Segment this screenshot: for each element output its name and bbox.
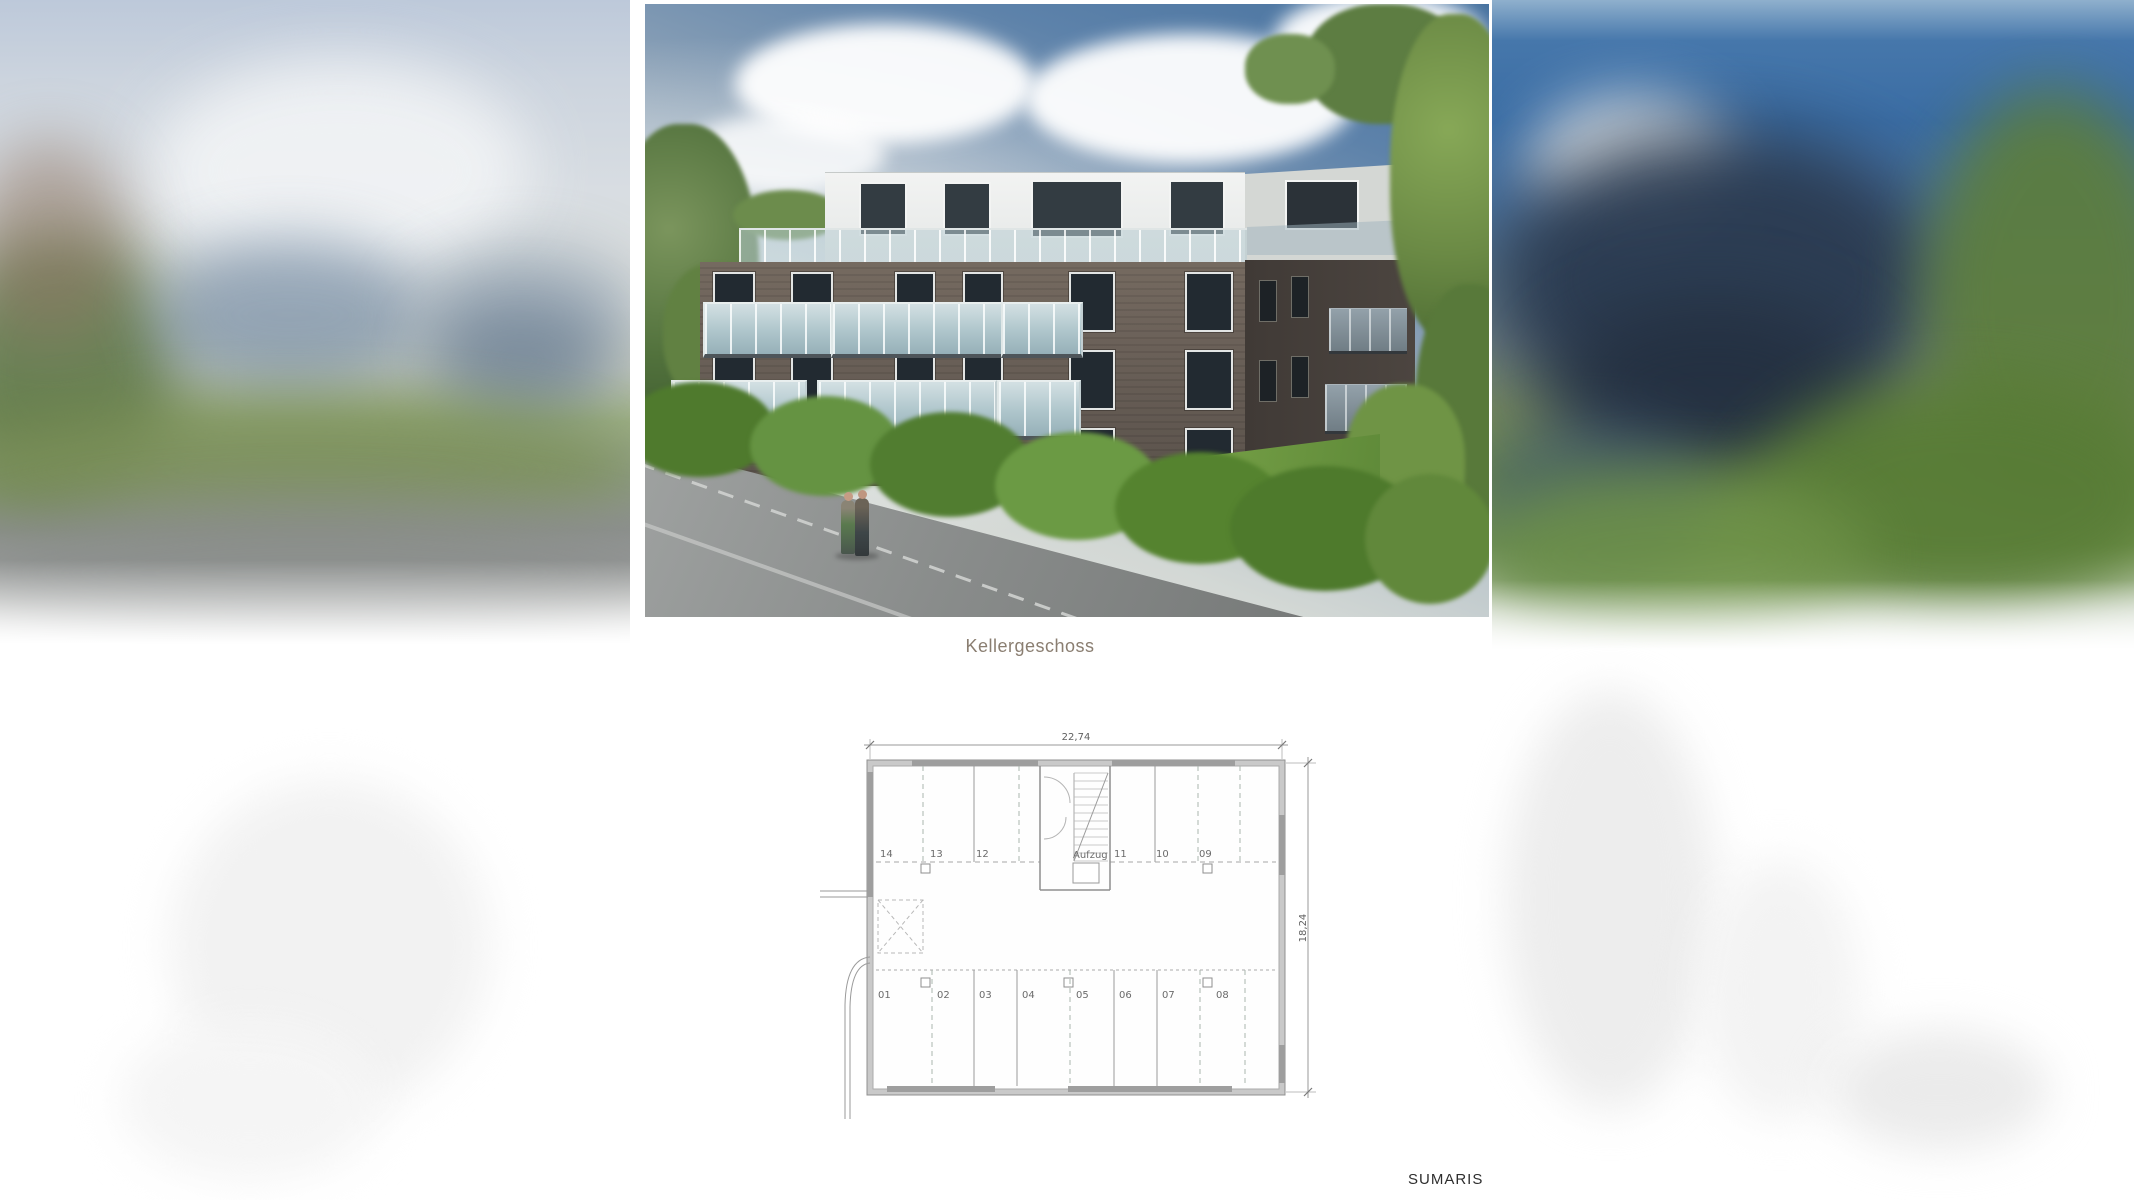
window: [1185, 350, 1233, 410]
room-label: 03: [979, 990, 992, 1001]
wall-pier: [887, 1086, 995, 1092]
driveway-curves: [820, 891, 870, 1119]
elevator-label: Aufzug: [1073, 850, 1108, 861]
real-estate-listing-image: Kellergeschoss 22,74 18,24: [0, 0, 2134, 1200]
pedestrian-head: [844, 492, 853, 501]
room-label: 11: [1114, 849, 1127, 860]
fade-to-white: [0, 560, 630, 680]
room-label: 06: [1119, 990, 1132, 1001]
side-window: [1259, 360, 1277, 402]
side-window: [1259, 280, 1277, 322]
balcony: [831, 302, 1003, 358]
basement-floor-plan: 22,74 18,24: [790, 715, 1330, 1127]
room-label: 09: [1199, 849, 1212, 860]
dimension-label-width: 22,74: [1062, 732, 1091, 743]
pedestrian-head: [858, 490, 867, 499]
column-marker: [921, 864, 930, 873]
dark-blob: [430, 300, 610, 420]
tree: [1245, 34, 1335, 104]
room-label: 14: [880, 849, 893, 860]
wall-pier: [867, 772, 873, 897]
fade-to-white: [1492, 580, 2134, 680]
watermark: SUMARIS: [1408, 1171, 1483, 1188]
balcony: [703, 302, 835, 358]
penthouse-window: [1285, 180, 1359, 230]
hedge-bush: [1365, 474, 1489, 604]
floor-plan-caption: Kellergeschoss: [607, 636, 1453, 657]
elevator-shaft: [1073, 863, 1099, 883]
room-label: 12: [976, 849, 989, 860]
room-label: 05: [1076, 990, 1089, 1001]
side-window: [1291, 356, 1309, 398]
blurred-backdrop-left: [0, 0, 630, 680]
side-window: [1291, 276, 1309, 318]
balcony: [1001, 302, 1083, 358]
room-label: 13: [930, 849, 943, 860]
column-marker: [1203, 978, 1212, 987]
column-marker: [921, 978, 930, 987]
faint-blob: [1505, 690, 1715, 1110]
blurred-backdrop-right: [1492, 0, 2134, 680]
room-label: 02: [937, 990, 950, 1001]
pedestrian: [855, 498, 869, 556]
faint-blob: [1830, 1030, 2050, 1150]
room-label: 04: [1022, 990, 1035, 1001]
dimension-label-height: 18,24: [1298, 914, 1309, 943]
room-label: 01: [878, 990, 891, 1001]
wall-pier: [912, 760, 1038, 766]
building-rendering-photo: [645, 4, 1489, 617]
pedestrian: [841, 500, 855, 554]
side-balcony: [1329, 308, 1407, 354]
room-label: 10: [1156, 849, 1169, 860]
wall-pier: [1279, 815, 1285, 875]
room-label: 08: [1216, 990, 1229, 1001]
wall-pier: [1279, 1045, 1285, 1083]
building-blob: [150, 240, 430, 390]
wall-pier: [1068, 1086, 1232, 1092]
window: [1185, 272, 1233, 332]
faint-blob: [120, 1020, 380, 1180]
room-label: 07: [1162, 990, 1175, 1001]
wall-pier: [1112, 760, 1235, 766]
column-marker: [1203, 864, 1212, 873]
column-marker: [1064, 978, 1073, 987]
